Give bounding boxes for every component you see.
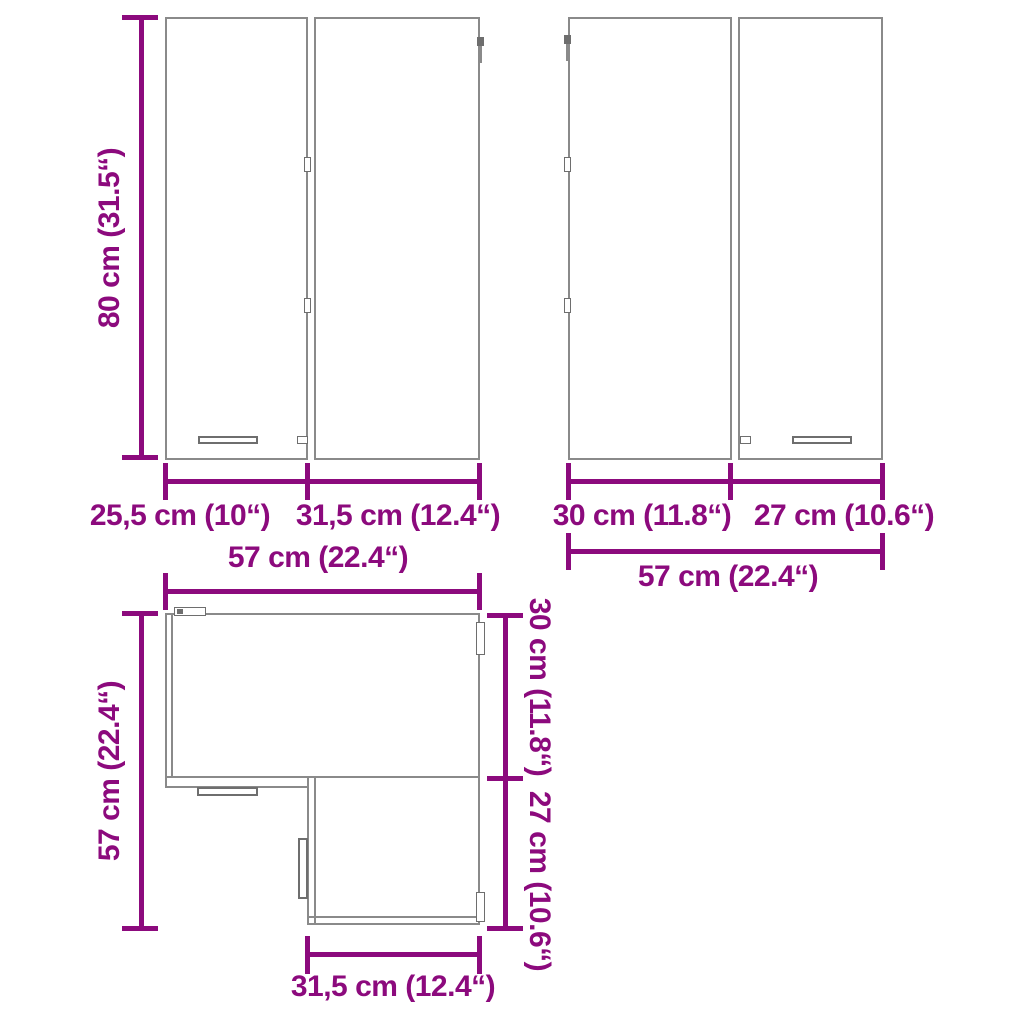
door-handle (197, 787, 258, 796)
door-right-width-label: 31,5 cm (12.4“) (278, 499, 518, 533)
dimension-tick (122, 455, 158, 460)
door-handle (792, 436, 852, 444)
dimension-tick (477, 463, 482, 500)
dimension-tick (487, 776, 523, 781)
dimension-tick (305, 463, 310, 500)
top-view-leg-body (307, 776, 480, 925)
dimension-line-bottom-width (307, 952, 480, 957)
height-dimension-label: 80 cm (31.5“) (93, 73, 127, 403)
hinge-mark-icon (304, 298, 311, 313)
dimension-tick (487, 926, 523, 931)
dimension-tick (566, 463, 571, 500)
dimension-tick (880, 463, 885, 500)
top-view-main-body (165, 613, 480, 778)
dimension-line-total-width (568, 549, 883, 554)
dimension-tick (566, 533, 571, 570)
dimension-tick (122, 926, 158, 931)
door-left-width-label: 25,5 cm (10“) (60, 499, 300, 533)
door-handle (298, 838, 308, 899)
bottom-width-label: 31,5 cm (12.4“) (273, 970, 513, 1004)
dimension-tick (122, 611, 158, 616)
hinge-icon (476, 622, 485, 655)
door-gap (730, 17, 740, 460)
dimension-tick (728, 463, 733, 500)
panel-line (171, 613, 173, 778)
hinge-icon (564, 35, 571, 44)
top-width-label: 57 cm (22.4“) (198, 541, 438, 575)
hinge-icon (476, 892, 485, 922)
dimension-tick (487, 613, 523, 618)
hinge-mark-icon (304, 157, 311, 172)
cabinet-left-body (165, 17, 480, 460)
cabinet-right-body (568, 17, 883, 460)
dimension-line-doors (568, 479, 883, 484)
dimension-tick (163, 573, 168, 610)
dimension-line-top-width (165, 589, 480, 594)
hinge-pin-icon (566, 44, 568, 61)
hinge-icon (177, 609, 183, 614)
dimension-tick (163, 463, 168, 500)
hinge-pin-icon (480, 46, 482, 63)
dimension-line-depth-left (139, 613, 144, 931)
hinge-mark-icon (564, 157, 571, 172)
panel-line (309, 916, 478, 918)
door-gap (306, 17, 316, 460)
left-depth-label: 57 cm (22.4“) (93, 606, 127, 936)
hinge-mark-icon (564, 298, 571, 313)
door-right-width-label: 27 cm (10.6“) (724, 499, 964, 533)
dimension-tick (880, 533, 885, 570)
dimension-tick (305, 936, 310, 974)
dimension-line-doors (165, 479, 480, 484)
door-handle (198, 436, 258, 444)
total-width-label: 57 cm (22.4“) (608, 560, 848, 594)
dimension-diagram: 80 cm (31.5“) 25,5 cm (10“) 31,5 cm (12.… (0, 0, 1024, 1024)
door-catch (740, 436, 751, 444)
right-lower-depth-label: 27 cm (10.6“) (522, 716, 556, 1024)
dimension-tick (122, 15, 158, 20)
door-catch (297, 436, 308, 444)
dimension-tick (477, 573, 482, 610)
dimension-line-height (139, 17, 144, 460)
panel-line (314, 778, 316, 923)
dimension-tick (477, 936, 482, 974)
hinge-icon (477, 37, 484, 46)
dimension-line-depth-right (503, 613, 508, 931)
